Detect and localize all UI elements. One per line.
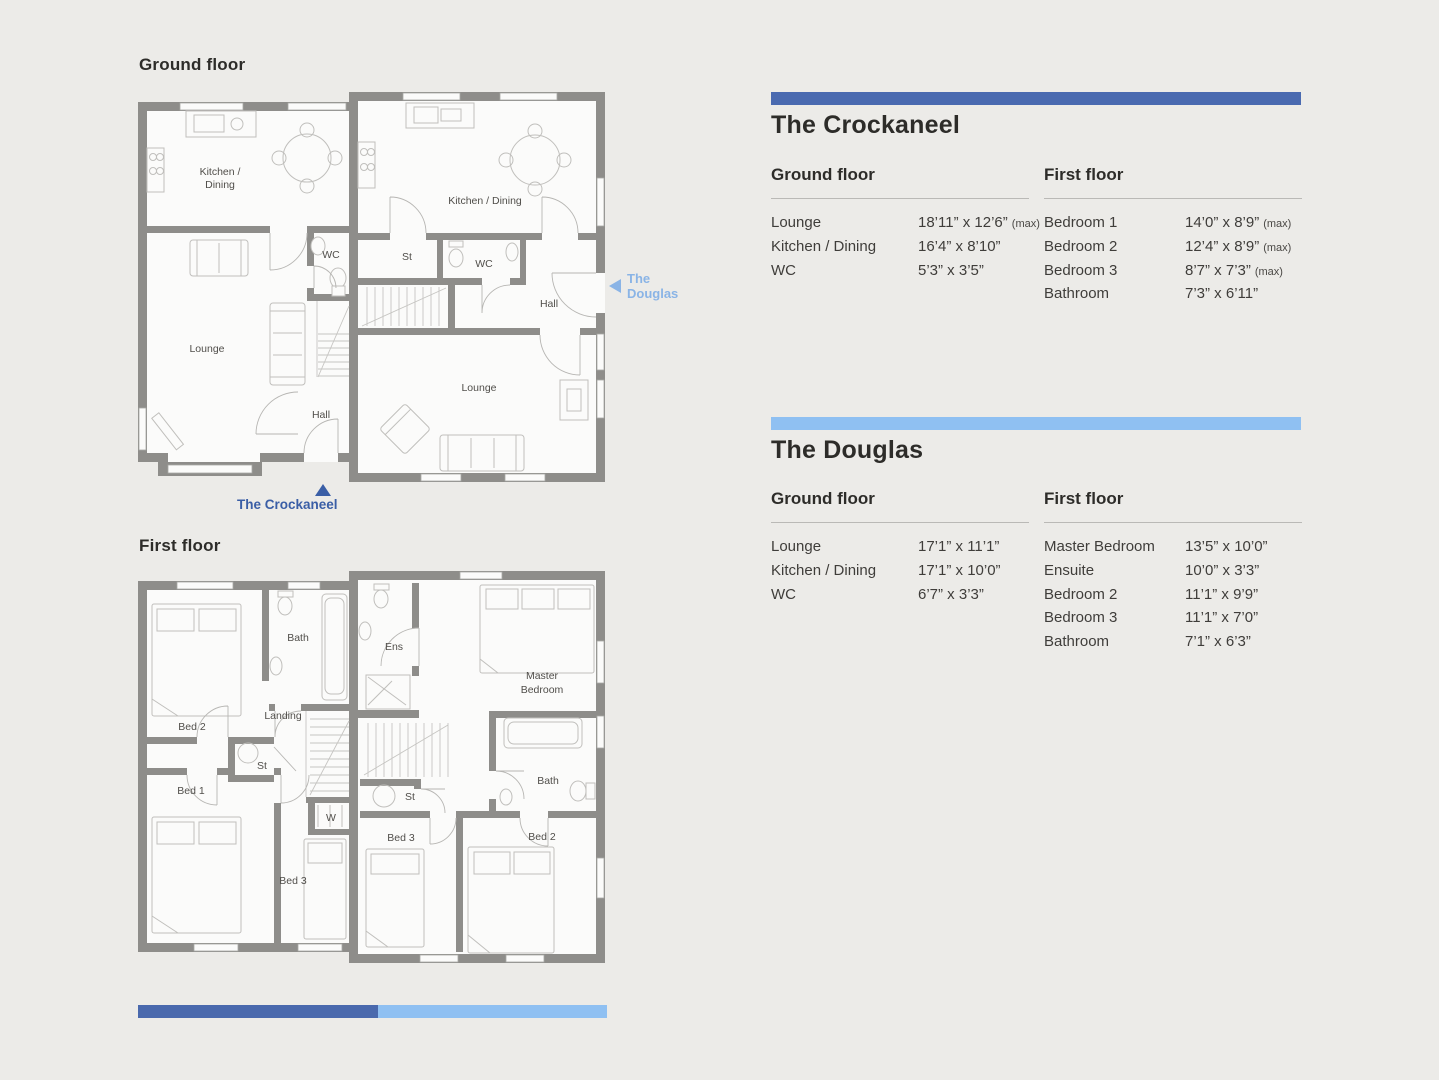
room-label-ensuite-douglas: Ens <box>385 641 403 653</box>
spec-row: Ensuite 10’0” x 3’3” <box>1044 560 1302 584</box>
footer-bar-dark <box>138 1005 378 1018</box>
spec-row: Kitchen / Dining 16’4” x 8’10” <box>771 236 1029 260</box>
spec-row: Bedroom 2 11’1” x 9’9” <box>1044 584 1302 608</box>
footer-bar-light <box>378 1005 607 1018</box>
footer-accent-bar <box>138 1005 607 1018</box>
ground-floor-heading: Ground floor <box>139 55 245 75</box>
first-floor-heading: First floor <box>139 536 221 556</box>
room-label-kitchen-crockaneel: Kitchen / <box>200 166 241 178</box>
room-label-bed3-crockaneel: Bed 3 <box>279 875 307 887</box>
room-label-bed3-douglas: Bed 3 <box>387 832 415 844</box>
room-label-bath-douglas: Bath <box>537 775 559 787</box>
douglas-title: The Douglas <box>771 436 923 465</box>
crockaneel-accent-bar <box>771 92 1301 105</box>
room-label-store-douglas: St <box>402 251 412 263</box>
divider <box>771 522 1029 523</box>
spec-row: Bedroom 2 12’4” x 8’9”(max) <box>1044 236 1302 260</box>
douglas-accent-bar <box>771 417 1301 430</box>
column-heading: First floor <box>1044 165 1302 198</box>
spec-row: Master Bedroom 13’5” x 10’0” <box>1044 536 1302 560</box>
room-label-hall-douglas: Hall <box>540 298 558 310</box>
room-label-store-douglas: St <box>405 791 415 803</box>
crockaneel-first-column: First floor Bedroom 1 14’0” x 8’9”(max) … <box>1044 165 1302 307</box>
crockaneel-title: The Crockaneel <box>771 111 960 140</box>
spec-row: Bedroom 3 11’1” x 7’0” <box>1044 607 1302 631</box>
room-label-wc-douglas: WC <box>475 258 493 270</box>
divider <box>771 198 1029 199</box>
room-label-wardrobe-crockaneel: W <box>326 812 336 824</box>
spec-row: Bedroom 1 14’0” x 8’9”(max) <box>1044 212 1302 236</box>
room-label-master1-douglas: Master <box>526 670 559 682</box>
first-floor-plan: Bed 2 Bath Landing St Bed 1 Bed 3 W Ens … <box>138 571 606 971</box>
divider <box>1044 522 1302 523</box>
spec-row: Lounge 17’1” x 11’1” <box>771 536 1029 560</box>
room-label-wc-crockaneel: WC <box>322 249 340 261</box>
spec-row: Bathroom 7’3” x 6’11” <box>1044 283 1302 307</box>
room-label-store-crockaneel: St <box>257 760 267 772</box>
room-label-bed1-crockaneel: Bed 1 <box>177 785 205 797</box>
room-label-lounge-crockaneel: Lounge <box>189 343 224 355</box>
room-label-hall-crockaneel: Hall <box>312 409 330 421</box>
spec-row: WC 5’3” x 3’5” <box>771 260 1029 284</box>
spec-row: WC 6’7” x 3’3” <box>771 584 1029 608</box>
crockaneel-ground-interior <box>138 102 358 462</box>
spec-row: Bedroom 3 8’7” x 7’3”(max) <box>1044 260 1302 284</box>
room-label-kitchen-douglas: Kitchen / Dining <box>448 195 522 207</box>
crockaneel-plan-marker: The Crockaneel <box>237 497 338 512</box>
douglas-ground-column: Ground floor Lounge 17’1” x 11’1” Kitche… <box>771 489 1029 607</box>
column-heading: First floor <box>1044 489 1302 522</box>
room-label-landing-crockaneel: Landing <box>264 710 302 722</box>
spec-row: Kitchen / Dining 17’1” x 10’0” <box>771 560 1029 584</box>
divider <box>1044 198 1302 199</box>
douglas-marker-line1: The <box>627 271 678 286</box>
crockaneel-ground-column: Ground floor Lounge 18’11” x 12’6”(max) … <box>771 165 1029 283</box>
room-label-lounge-douglas: Lounge <box>461 382 496 394</box>
column-heading: Ground floor <box>771 165 1029 198</box>
left-arrow-icon <box>609 279 621 293</box>
brochure-page: Ground floor <box>0 0 1439 1080</box>
room-label-dining-crockaneel: Dining <box>205 179 235 191</box>
room-label-master2-douglas: Bedroom <box>521 684 564 696</box>
douglas-marker-line2: Douglas <box>627 286 678 301</box>
up-arrow-icon <box>315 484 331 496</box>
spec-row: Bathroom 7’1” x 6’3” <box>1044 631 1302 655</box>
spec-row: Lounge 18’11” x 12’6”(max) <box>771 212 1029 236</box>
room-label-bed2-douglas: Bed 2 <box>528 831 556 843</box>
room-label-bath-crockaneel: Bath <box>287 632 309 644</box>
douglas-first-column: First floor Master Bedroom 13’5” x 10’0”… <box>1044 489 1302 655</box>
room-label-bed2-crockaneel: Bed 2 <box>178 721 206 733</box>
column-heading: Ground floor <box>771 489 1029 522</box>
ground-floor-plan: Kitchen / Dining WC Lounge Hall Kitchen … <box>138 90 606 493</box>
douglas-plan-marker: The Douglas <box>609 271 678 301</box>
